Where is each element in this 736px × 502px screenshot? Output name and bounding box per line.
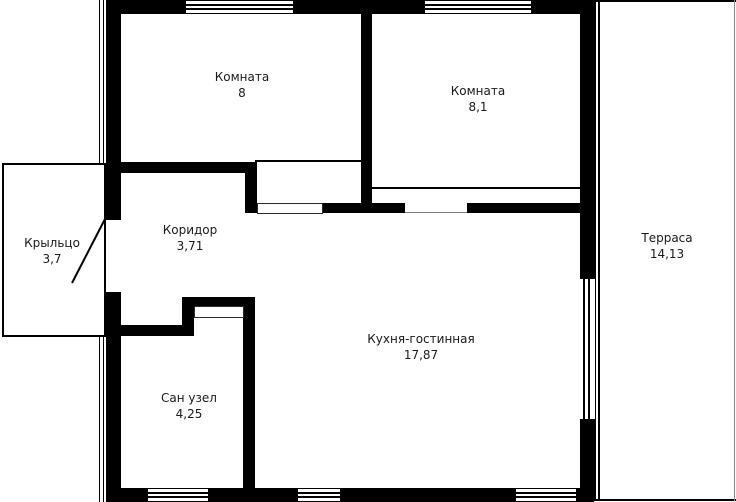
room-area: 4,25 xyxy=(161,406,217,422)
room-name: Комната xyxy=(451,83,505,99)
room-area: 17,87 xyxy=(367,347,474,363)
room1-face-line xyxy=(255,160,361,162)
window-pane-line xyxy=(425,8,531,10)
label-room-1: Комната 8 xyxy=(215,69,269,101)
door-room1-opening xyxy=(258,204,322,213)
terrace-bottom-line xyxy=(594,499,736,501)
window-pane-line xyxy=(298,496,340,498)
label-porch: Крыльцо 3,7 xyxy=(24,235,80,267)
room-name: Комната xyxy=(215,69,269,85)
room-area: 3,71 xyxy=(163,238,218,254)
room-area: 3,7 xyxy=(24,251,80,267)
room-name: Сан узел xyxy=(161,390,217,406)
window-pane-line xyxy=(516,492,576,494)
terrace-top-line xyxy=(594,0,736,2)
floor-plan: Комната 8 Комната 8,1 Терраса 14,13 Крыл… xyxy=(0,0,736,502)
window-pane-line xyxy=(186,4,293,6)
label-bathroom: Сан узел 4,25 xyxy=(161,390,217,422)
window-pane-line xyxy=(583,279,585,419)
window-kitchen-south2-icon xyxy=(516,489,576,501)
room-name: Коридор xyxy=(163,222,218,238)
terrace-left-line-2 xyxy=(598,0,600,501)
room-name: Кухня-гостинная xyxy=(367,331,474,347)
window-kitchen-south1-icon xyxy=(298,489,340,501)
window-bathroom-icon xyxy=(148,489,208,501)
wall-corridor-top xyxy=(121,162,257,173)
label-room-2: Комната 8,1 xyxy=(451,83,505,115)
door-entrance-opening xyxy=(105,220,122,292)
room-name: Терраса xyxy=(641,230,692,246)
terrace-right-line xyxy=(734,0,735,501)
terrace-left-line-1 xyxy=(594,0,596,501)
door-room2-opening xyxy=(405,203,467,213)
room2-face-line xyxy=(370,187,580,189)
label-kitchen: Кухня-гостинная 17,87 xyxy=(367,331,474,363)
window-room2-icon xyxy=(425,1,531,13)
room-area: 8,1 xyxy=(451,99,505,115)
window-room1-icon xyxy=(186,1,293,13)
window-pane-line xyxy=(298,492,340,494)
window-pane-line xyxy=(516,496,576,498)
window-pane-line xyxy=(186,8,293,10)
label-terrace: Терраса 14,13 xyxy=(641,230,692,262)
label-corridor: Коридор 3,71 xyxy=(163,222,218,254)
window-pane-line xyxy=(148,492,208,494)
wall-between-rooms xyxy=(361,14,372,205)
window-pane-line xyxy=(148,496,208,498)
window-pane-line xyxy=(425,4,531,6)
wall-bathroom-right xyxy=(243,297,255,502)
door-bathroom-leaf xyxy=(195,307,243,317)
window-kitchen-east-icon xyxy=(579,279,595,419)
room-area: 8 xyxy=(215,85,269,101)
window-pane-line xyxy=(588,279,590,419)
room-area: 14,13 xyxy=(641,246,692,262)
room-name: Крыльцо xyxy=(24,235,80,251)
